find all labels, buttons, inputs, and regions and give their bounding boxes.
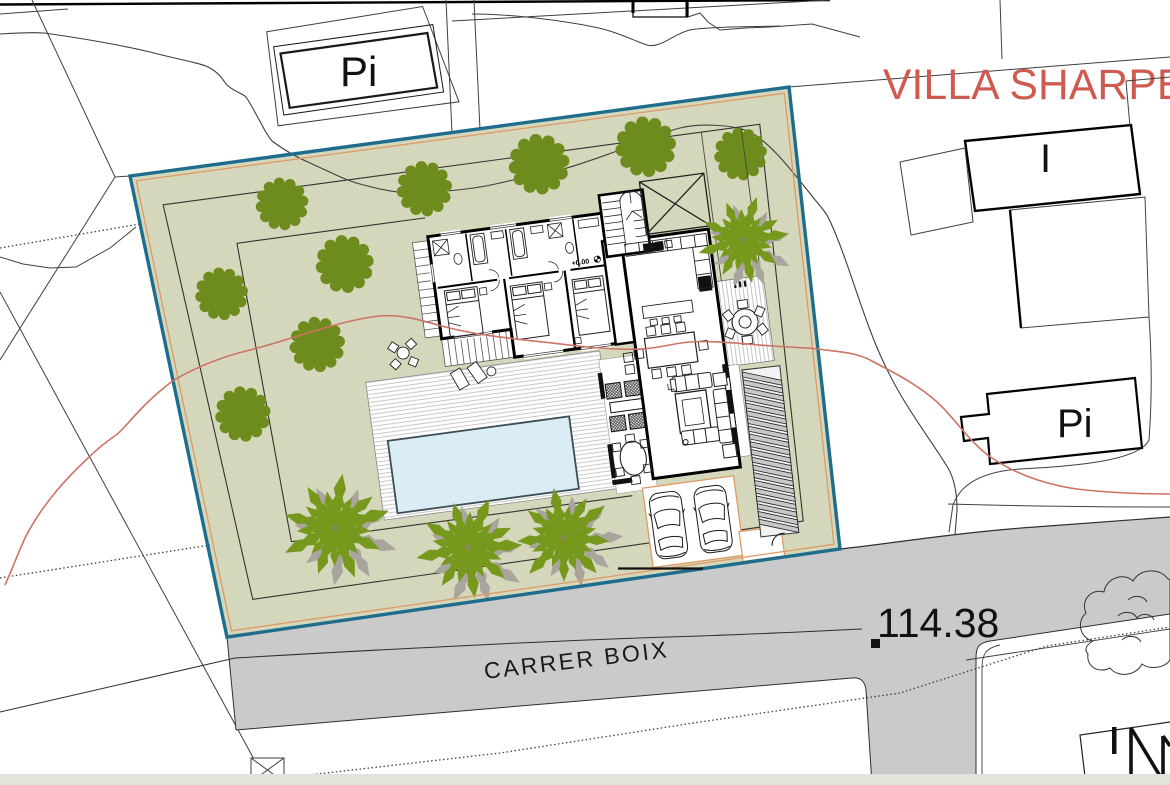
svg-text:VILLA SHARPE: VILLA SHARPE (883, 62, 1170, 109)
svg-text:Pi: Pi (340, 48, 377, 95)
svg-text:114.38: 114.38 (877, 600, 999, 646)
svg-text:Pi: Pi (1057, 402, 1093, 446)
svg-text:I: I (1040, 137, 1051, 181)
